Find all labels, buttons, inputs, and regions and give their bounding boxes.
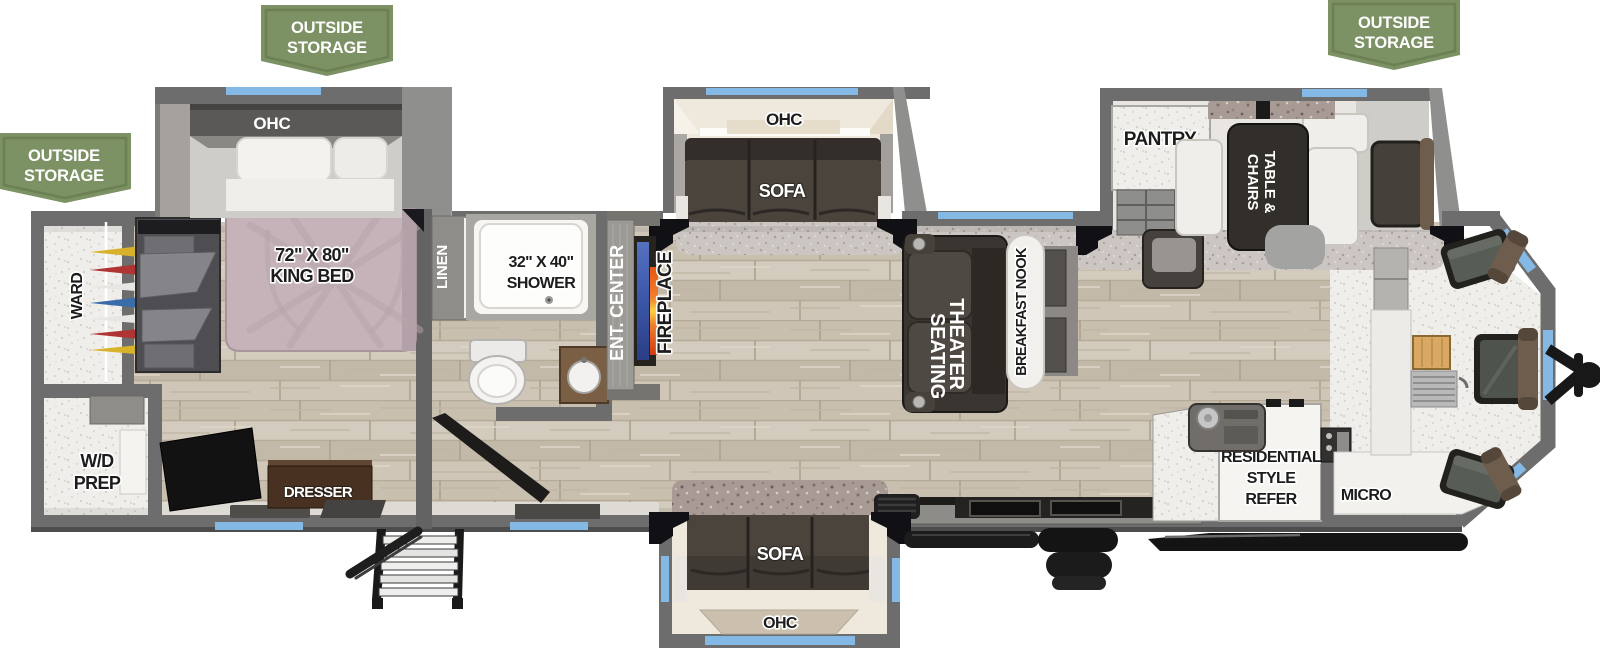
svg-text:DRESSER: DRESSER <box>284 484 353 501</box>
svg-text:32" X 40": 32" X 40" <box>509 254 574 271</box>
svg-text:SOFA: SOFA <box>757 544 804 564</box>
svg-text:MICRO: MICRO <box>1341 487 1391 504</box>
svg-text:SOFA: SOFA <box>759 181 806 201</box>
svg-text:KING BED: KING BED <box>270 266 354 286</box>
svg-text:W/D: W/D <box>80 451 114 471</box>
svg-text:OUTSIDE: OUTSIDE <box>291 19 363 37</box>
svg-text:ENT. CENTER: ENT. CENTER <box>607 245 627 361</box>
svg-text:OHC: OHC <box>766 110 802 129</box>
svg-text:CHAIRS: CHAIRS <box>1244 154 1261 210</box>
svg-text:BREAKFAST NOOK: BREAKFAST NOOK <box>1014 247 1030 376</box>
svg-text:STORAGE: STORAGE <box>24 167 104 185</box>
svg-text:PREP: PREP <box>74 473 121 493</box>
svg-text:REFER: REFER <box>1245 491 1297 508</box>
svg-text:STORAGE: STORAGE <box>287 39 367 57</box>
svg-text:OUTSIDE: OUTSIDE <box>28 147 100 165</box>
svg-text:WARD: WARD <box>69 273 86 320</box>
svg-text:LINEN: LINEN <box>434 245 451 289</box>
svg-text:STYLE: STYLE <box>1247 470 1296 487</box>
svg-text:72" X 80": 72" X 80" <box>275 245 349 265</box>
svg-text:FIREPLACE: FIREPLACE <box>655 252 676 354</box>
svg-text:STORAGE: STORAGE <box>1354 34 1434 52</box>
svg-text:TABLE &: TABLE & <box>1261 151 1278 214</box>
svg-text:OUTSIDE: OUTSIDE <box>1358 14 1430 32</box>
svg-text:OHC: OHC <box>763 615 798 632</box>
svg-text:SHOWER: SHOWER <box>507 275 576 292</box>
svg-text:OHC: OHC <box>253 114 290 133</box>
svg-text:SEATING: SEATING <box>926 313 948 399</box>
